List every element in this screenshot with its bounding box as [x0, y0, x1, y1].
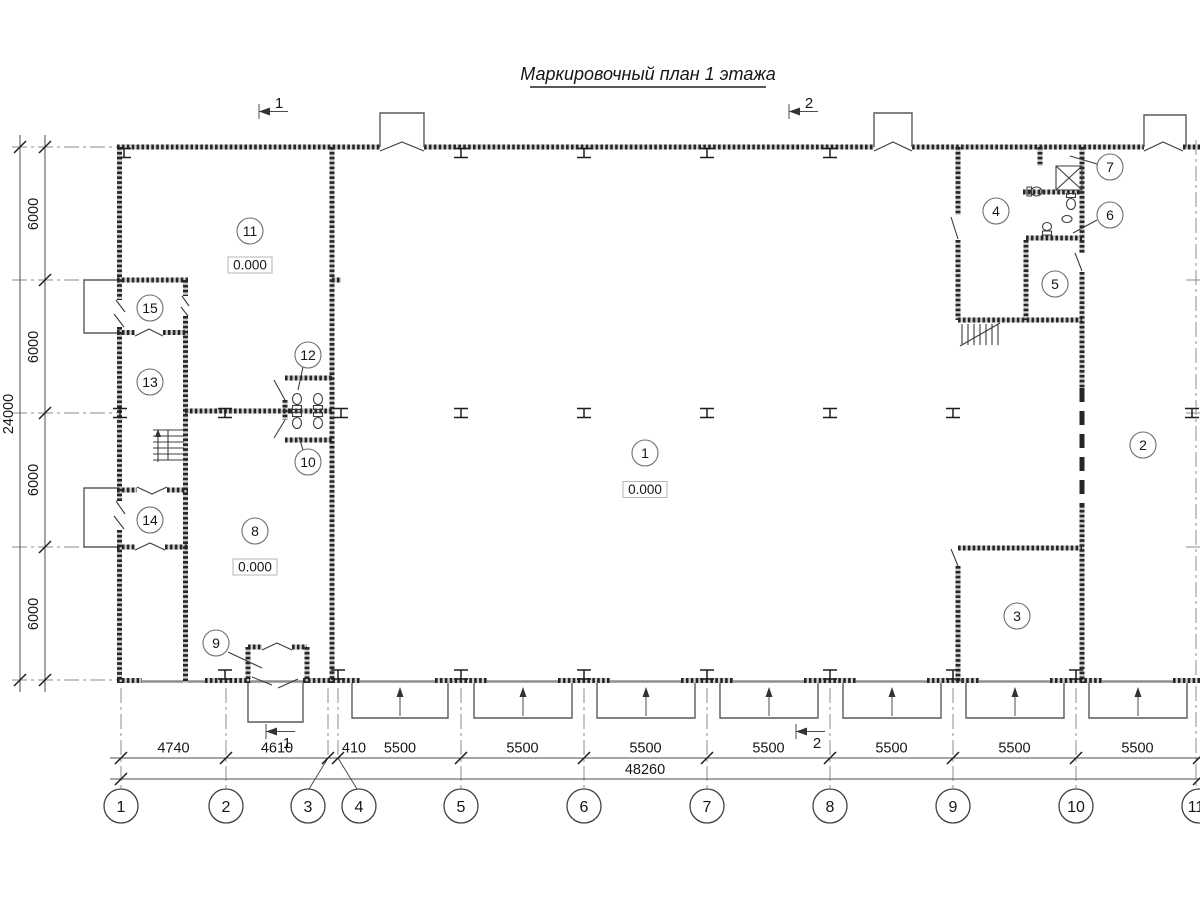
columns — [113, 149, 1199, 680]
section-markers: 1 2 1 2 — [259, 95, 825, 752]
room-label-12: 12 — [300, 347, 316, 363]
grid-bubble-label-9: 9 — [949, 799, 958, 816]
dock-arrows — [397, 687, 1142, 716]
room-label-6: 6 — [1106, 207, 1114, 223]
dim-5500: 5500 — [1121, 741, 1153, 757]
porches-and-docks — [84, 113, 1187, 722]
room-label-8: 8 — [251, 523, 259, 539]
wc-bowl-icon — [1043, 223, 1052, 231]
room-label-13: 13 — [142, 374, 158, 390]
grid-bubble-label-7: 7 — [703, 799, 712, 816]
dimension-lines: 4740 4610 410 5500 5500 5500 5500 5500 5… — [1, 135, 1200, 789]
grid-lines — [12, 140, 1200, 789]
floor-plan-drawing: Маркировочный план 1 этажа — [0, 0, 1200, 900]
floor-plan-sheet: Маркировочный план 1 этажа — [0, 0, 1200, 900]
room-label-10: 10 — [300, 454, 316, 470]
room-label-7: 7 — [1106, 159, 1114, 175]
level-value-room11: 0.000 — [233, 258, 267, 273]
section-label: 1 — [275, 95, 283, 112]
dim-6000: 6000 — [26, 198, 42, 230]
dim-5500: 5500 — [506, 741, 538, 757]
building-walls — [117, 147, 1200, 683]
section-arrow-head — [796, 728, 807, 736]
wc-bowl-icon — [1067, 199, 1076, 210]
grid-bubble-label-11: 11 — [1188, 799, 1200, 816]
section-arrow-head — [789, 108, 800, 116]
dim-5500: 5500 — [629, 741, 661, 757]
wc-bowl-icon — [293, 394, 302, 405]
column-i-beams — [113, 149, 1199, 680]
dimension-line-paths — [20, 135, 1200, 789]
grid-bubble-label-4: 4 — [355, 799, 364, 816]
room-label-1: 1 — [641, 445, 649, 461]
section-marker-2-bottom: 2 — [796, 724, 825, 752]
dim-4740: 4740 — [157, 741, 189, 757]
room-label-11: 11 — [243, 223, 258, 239]
page-title: Маркировочный план 1 этажа — [520, 64, 775, 84]
dim-total-24000: 24000 — [1, 394, 17, 434]
grid-bubble-label-3: 3 — [304, 799, 313, 816]
grid-bubble-label-10: 10 — [1067, 799, 1085, 816]
dim-5500: 5500 — [875, 741, 907, 757]
elevator-shaft — [1056, 166, 1082, 190]
stair-room13 — [153, 429, 184, 462]
section-marker-2-top: 2 — [789, 95, 818, 119]
grid-bubble-label-5: 5 — [457, 799, 466, 816]
section-marker-1-top: 1 — [259, 95, 288, 119]
level-value-room8: 0.000 — [238, 560, 272, 575]
porch-outlines — [84, 113, 1187, 722]
dim-5500: 5500 — [384, 741, 416, 757]
dim-6000: 6000 — [26, 331, 42, 363]
sink-icon — [1062, 216, 1072, 223]
room-label-5: 5 — [1051, 276, 1059, 292]
room-label-15: 15 — [142, 300, 158, 316]
drawing-title: Маркировочный план 1 этажа — [520, 64, 775, 87]
dim-6000: 6000 — [26, 464, 42, 496]
grid-bubble-label-6: 6 — [580, 799, 589, 816]
room-label-4: 4 — [992, 203, 1000, 219]
room-label-3: 3 — [1013, 608, 1021, 624]
wc-bowl-icon — [314, 394, 323, 405]
section-label: 1 — [283, 735, 291, 752]
section-arrow-head — [266, 728, 277, 736]
stair-room4-entry — [960, 323, 1000, 346]
room-labels: 1 2 3 4 5 6 7 8 9 10 11 12 13 14 15 — [137, 154, 1156, 656]
wall-backing — [117, 147, 1200, 683]
wc-bowl-icon — [314, 418, 323, 429]
room-label-2: 2 — [1139, 437, 1147, 453]
axis-center-lines — [12, 140, 1200, 789]
dim-410: 410 — [342, 741, 366, 757]
dimension-labels-left: 6000 6000 6000 6000 24000 — [1, 198, 42, 630]
dock-arrow-heads — [397, 687, 1142, 697]
dimension-tick-slashes — [14, 141, 1200, 785]
dim-5500: 5500 — [998, 741, 1030, 757]
room-label-14: 14 — [142, 512, 158, 528]
dimension-labels-bottom: 4740 4610 410 5500 5500 5500 5500 5500 5… — [157, 741, 1153, 779]
wc-bowl-icon — [293, 418, 302, 429]
dim-5500: 5500 — [752, 741, 784, 757]
grid-bubbles: 1 2 3 4 5 6 7 8 9 10 11 — [104, 789, 1200, 823]
dim-6000: 6000 — [26, 598, 42, 630]
section-label: 2 — [813, 735, 821, 752]
level-value-room1: 0.000 — [628, 482, 662, 497]
grid-bubble-label-8: 8 — [826, 799, 835, 816]
section-arrow-head — [259, 108, 270, 116]
grid-bubble-label-1: 1 — [117, 799, 126, 816]
section-label: 2 — [805, 95, 813, 112]
label-leader-lines — [228, 156, 1097, 668]
room-label-9: 9 — [212, 635, 220, 651]
wall-hatched — [117, 147, 1200, 683]
grid-bubble-label-2: 2 — [222, 799, 231, 816]
dim-total-48260: 48260 — [625, 762, 665, 778]
